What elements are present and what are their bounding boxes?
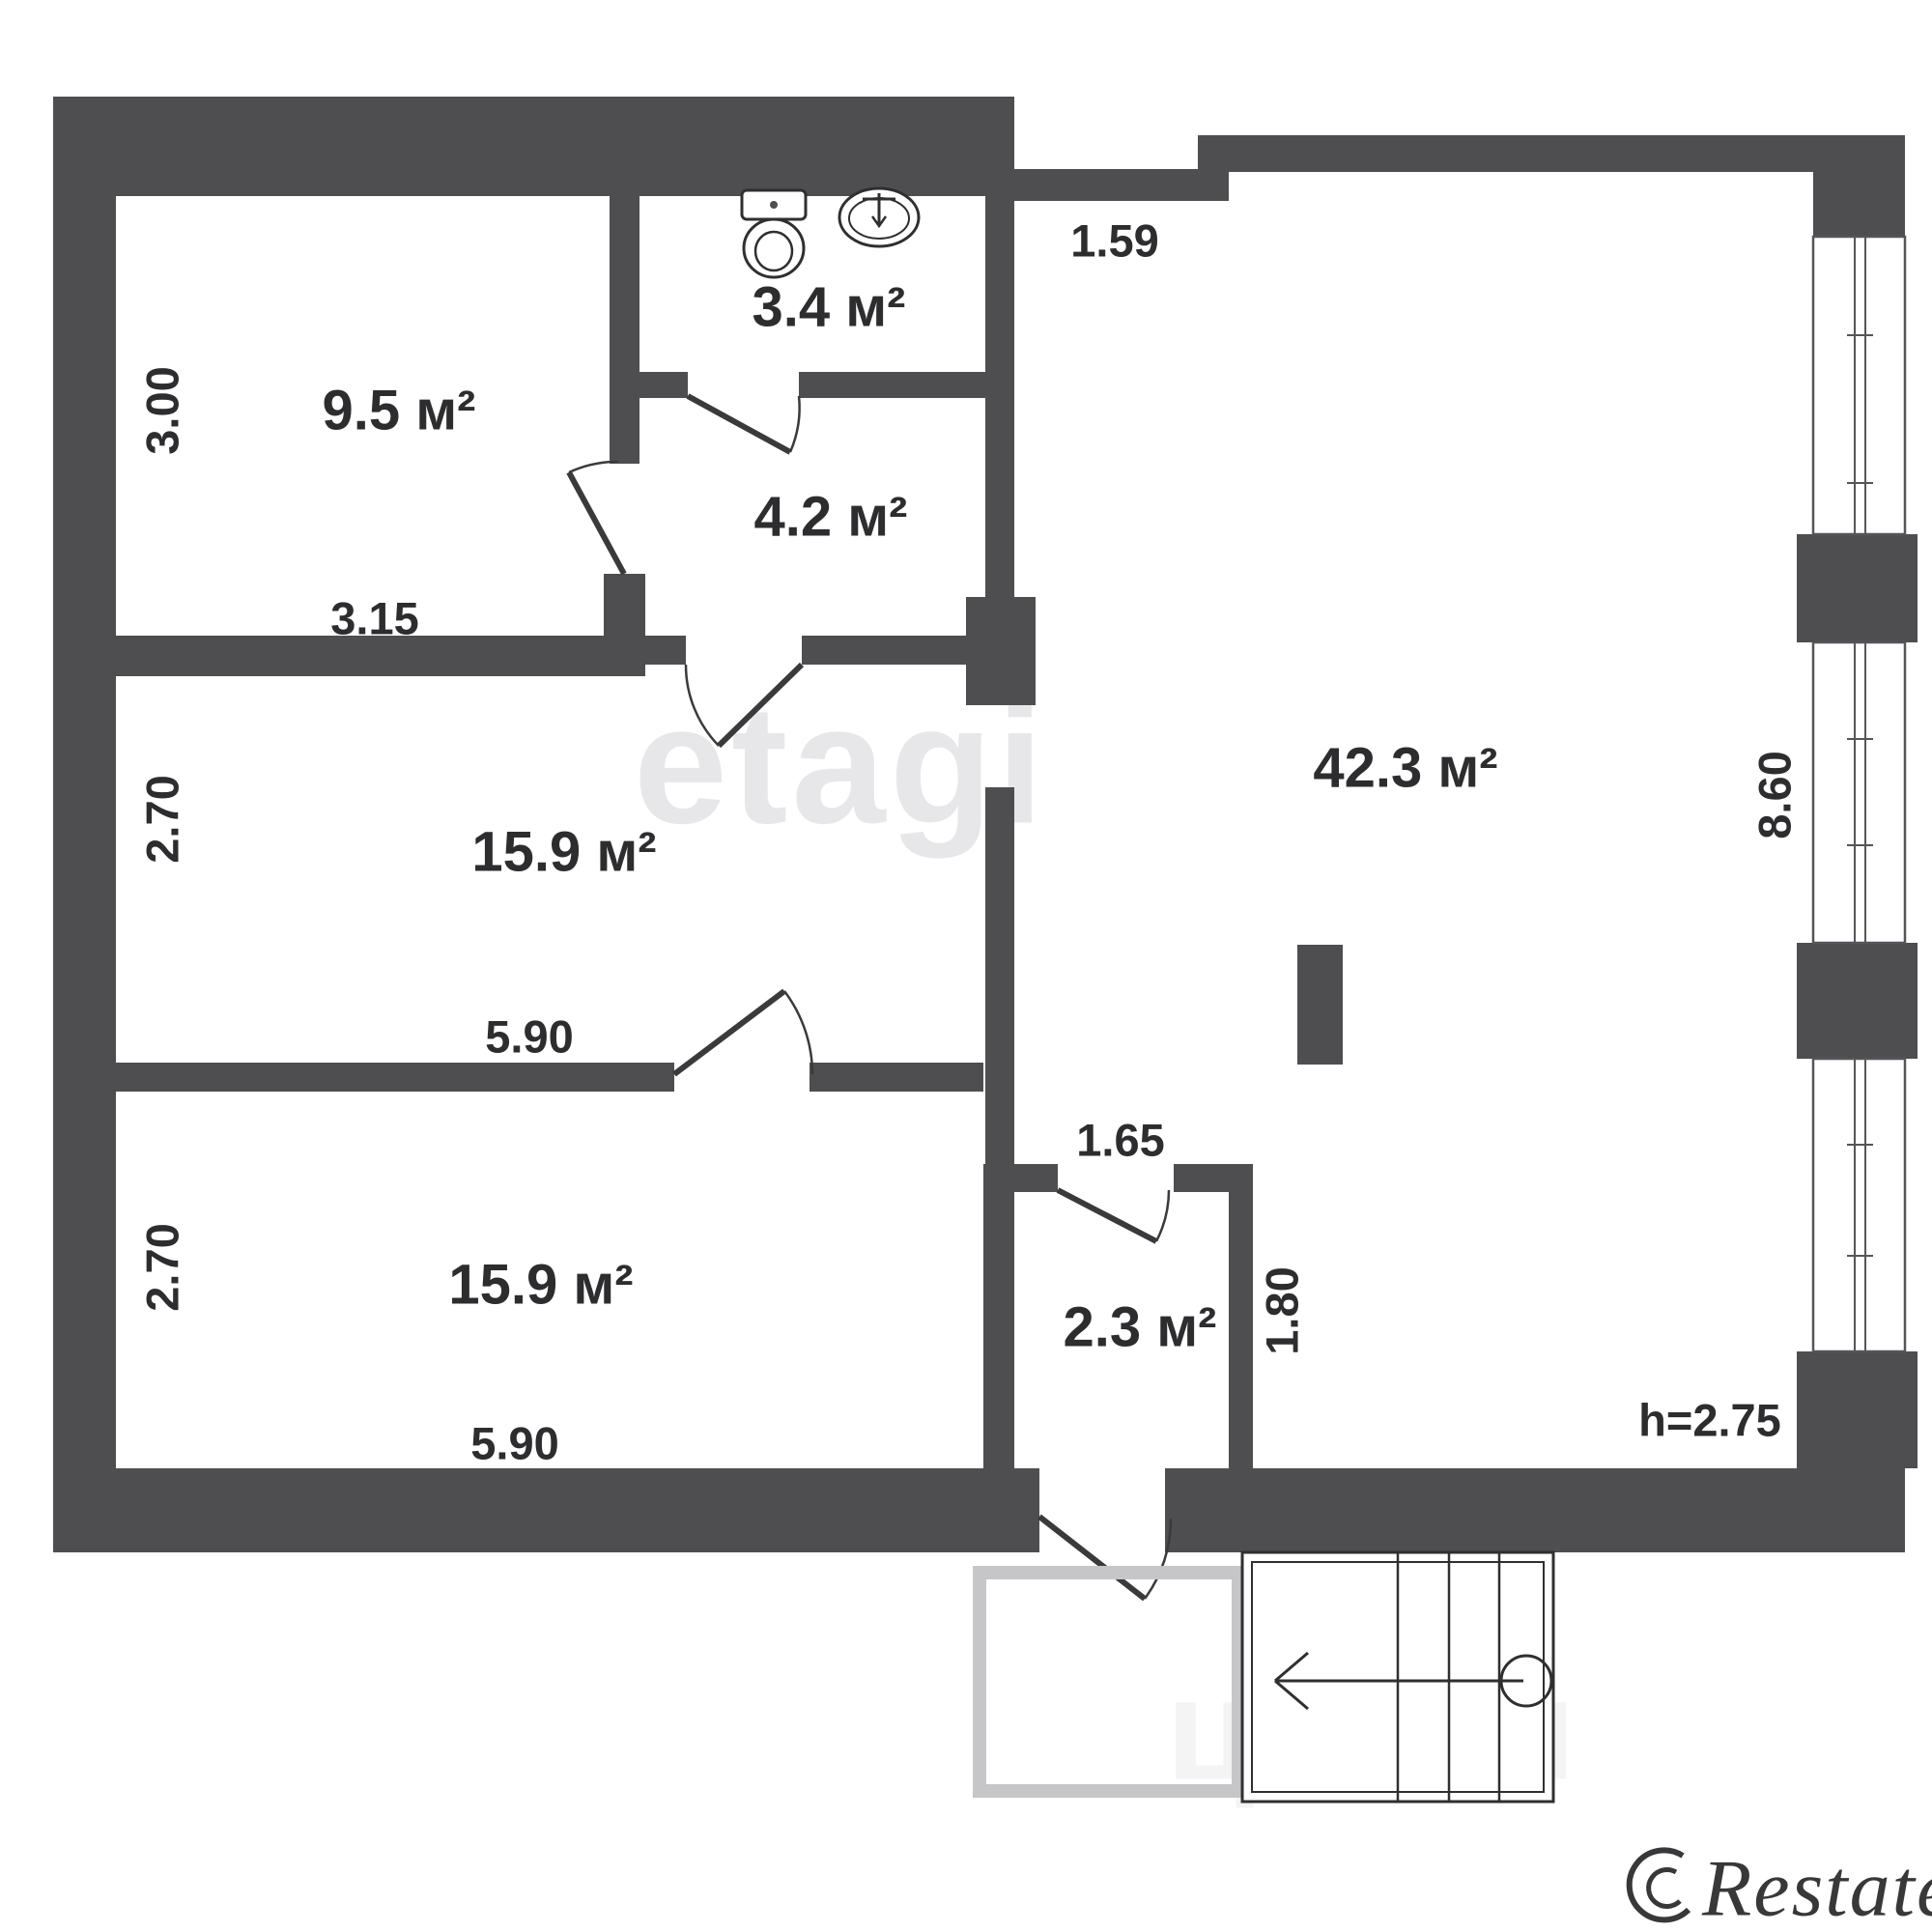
dimension-5-90-upper: 5.90 [485, 1010, 573, 1064]
dimension-3-15: 3.15 [330, 592, 418, 645]
watermark-restate-brand: Restate [1702, 1842, 1932, 1932]
floor-plan-drawing [0, 0, 1932, 1932]
door-room4-2-to-15-9 [686, 665, 802, 746]
window-middle [1813, 642, 1905, 943]
area-label-entry-2-3: 2.3 м² [1064, 1295, 1217, 1360]
dimension-3-00: 3.00 [136, 366, 189, 454]
dimension-1-59: 1.59 [1070, 214, 1158, 268]
bathroom-fixtures [742, 188, 919, 277]
area-label-room-4-2: 4.2 м² [754, 485, 908, 550]
window-bottom [1813, 1059, 1905, 1351]
dimension-1-65: 1.65 [1076, 1114, 1164, 1167]
door-between-15-9-rooms [674, 991, 812, 1074]
restate-logo-icon [1630, 1850, 1689, 1919]
door-room9-5 [569, 462, 624, 574]
ceiling-height-note: h=2.75 [1638, 1394, 1781, 1447]
door-entrance [1039, 1517, 1171, 1599]
window-top [1813, 237, 1905, 534]
dimension-2-70-lower: 2.70 [136, 1223, 189, 1311]
floor-plan-page: etagi циан [0, 0, 1932, 1932]
sink-icon [839, 188, 919, 246]
area-label-hall-42-3: 42.3 м² [1313, 736, 1497, 801]
toilet-icon [742, 190, 806, 277]
doors [569, 396, 1171, 1599]
dimension-2-70-upper: 2.70 [136, 775, 189, 863]
door-hall-to-entry-room [1058, 1190, 1169, 1241]
dimension-8-60: 8.60 [1748, 751, 1802, 838]
windows [1813, 237, 1905, 1351]
stairs [1242, 1552, 1553, 1802]
door-bathroom [688, 396, 800, 452]
walls [53, 97, 1918, 1552]
entrance-porch [980, 1573, 1238, 1791]
dimension-1-80: 1.80 [1256, 1266, 1309, 1354]
area-label-room-15-9-lower: 15.9 м² [448, 1253, 633, 1318]
area-label-room-15-9-upper: 15.9 м² [471, 820, 656, 885]
area-label-room-9-5: 9.5 м² [323, 379, 476, 443]
dimension-5-90-lower: 5.90 [470, 1417, 558, 1470]
area-label-bathroom: 3.4 м² [753, 275, 906, 340]
